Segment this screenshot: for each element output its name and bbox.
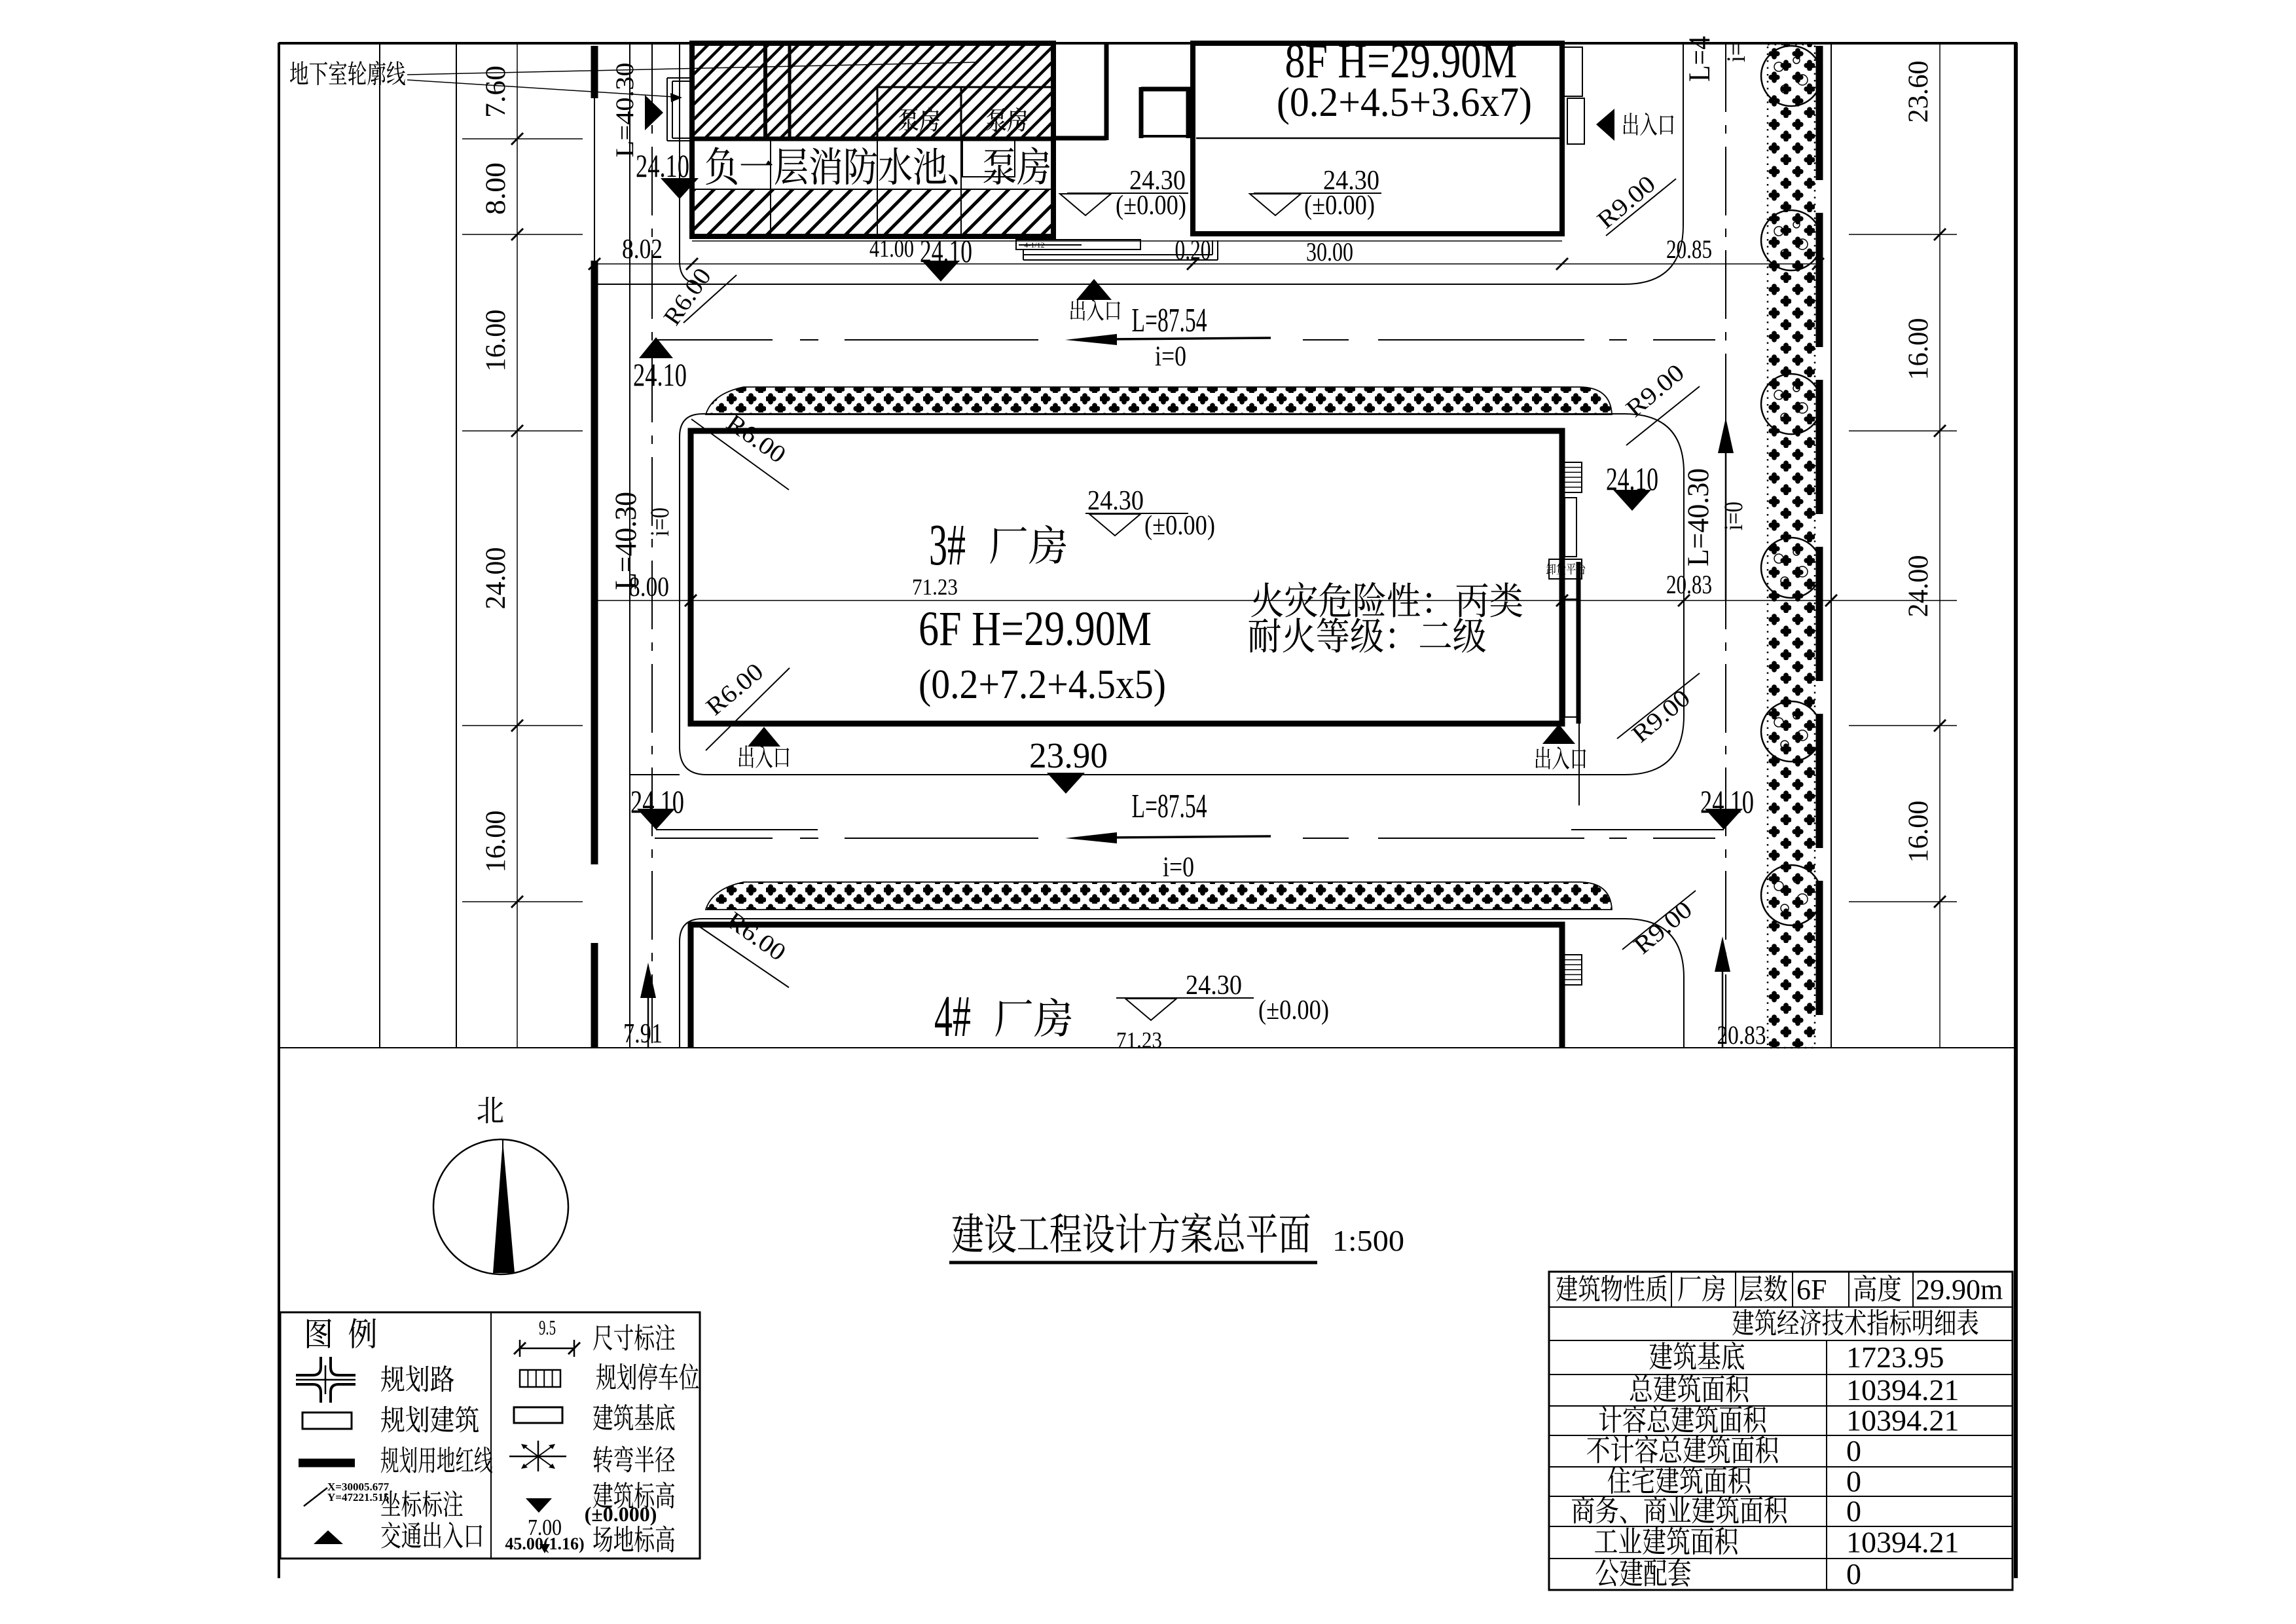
svg-text:24.30: 24.30 [1087,485,1144,516]
svg-text:(±0.00): (±0.00) [1144,510,1215,541]
svg-text:4-1/12: 4-1/12 [1024,240,1044,249]
svg-text:L=4: L=4 [1683,36,1717,82]
svg-text:(±0.000): (±0.000) [585,1502,657,1526]
svg-text:7.91: 7.91 [623,1018,663,1049]
svg-text:16.00: 16.00 [1903,801,1934,863]
svg-text:8.02: 8.02 [622,234,663,265]
svg-text:71.23: 71.23 [1116,1027,1162,1053]
svg-text:i=0: i=0 [1155,341,1186,372]
svg-text:(±0.00): (±0.00) [1304,190,1375,221]
svg-text:L=40.30: L=40.30 [1682,468,1715,566]
svg-text:L=87.54: L=87.54 [1132,301,1207,339]
svg-text:24.00: 24.00 [480,547,511,610]
svg-text:24.00: 24.00 [1903,555,1934,618]
svg-text:0: 0 [1846,1494,1861,1528]
svg-text:i=: i= [1721,43,1751,62]
svg-text:(0.2+7.2+4.5x5): (0.2+7.2+4.5x5) [919,661,1166,707]
svg-text:3#: 3# [929,513,966,578]
svg-text:0.20: 0.20 [1175,234,1211,266]
svg-text:20.85: 20.85 [1666,234,1712,264]
svg-text:(0.2+4.5+3.6x7): (0.2+4.5+3.6x7) [1277,79,1532,125]
svg-text:i=0: i=0 [1163,851,1194,883]
svg-text:10394.21: 10394.21 [1846,1404,1959,1437]
svg-text:23.90: 23.90 [1029,735,1108,775]
svg-text:4#: 4# [934,984,971,1049]
svg-text:1:500: 1:500 [1332,1225,1404,1257]
svg-text:i=0: i=0 [1719,502,1748,530]
svg-text:L=40.30: L=40.30 [611,63,639,158]
svg-text:L=40.30: L=40.30 [610,492,643,590]
svg-text:16.00: 16.00 [480,310,511,372]
svg-text:10394.21: 10394.21 [1846,1373,1959,1407]
svg-text:16.00: 16.00 [480,811,511,873]
svg-text:L=87.54: L=87.54 [1132,787,1207,825]
svg-text:24.10: 24.10 [633,357,687,393]
svg-text:6F: 6F [1796,1274,1827,1306]
svg-text:(±0.00): (±0.00) [1116,190,1186,221]
svg-text:10394.21: 10394.21 [1846,1526,1959,1559]
svg-text:0: 0 [1846,1434,1861,1467]
svg-text:71.23: 71.23 [912,574,958,600]
svg-text:1723.95: 1723.95 [1846,1340,1944,1374]
svg-text:0: 0 [1846,1557,1861,1591]
svg-text:30.00: 30.00 [1306,237,1353,267]
svg-text:(±0.00): (±0.00) [1258,995,1329,1025]
svg-text:23.60: 23.60 [1903,61,1934,123]
svg-text:29.90m: 29.90m [1916,1274,2003,1306]
svg-text:8.00: 8.00 [480,162,511,215]
svg-text:6F H=29.90M: 6F H=29.90M [919,602,1152,656]
svg-text:i=0: i=0 [645,507,674,536]
svg-text:0: 0 [1846,1465,1861,1498]
svg-text:24.30: 24.30 [1186,970,1242,1001]
svg-text:20.83: 20.83 [1717,1020,1766,1050]
svg-text:20.83: 20.83 [1666,570,1712,599]
svg-text:9.5: 9.5 [539,1316,556,1339]
svg-text:41.00: 41.00 [869,235,914,263]
svg-text:16.00: 16.00 [1903,318,1934,380]
svg-text:Y=47221.515: Y=47221.515 [327,1491,389,1504]
